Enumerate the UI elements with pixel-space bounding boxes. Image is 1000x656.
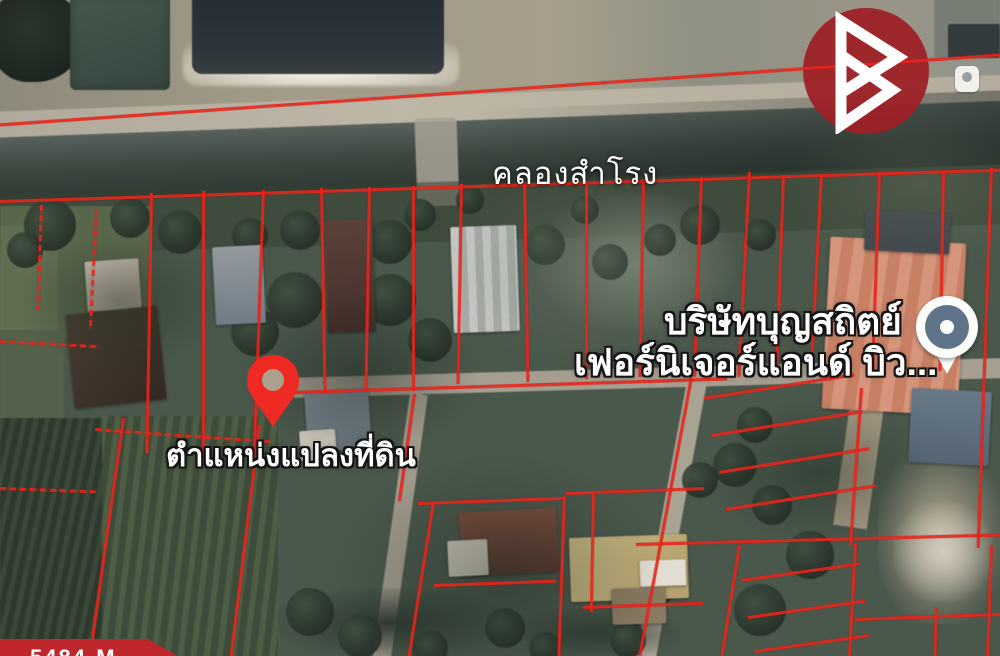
parcel-boundary-line [712, 410, 863, 437]
poi-center-dot [940, 320, 954, 334]
parcel-boundary-line [741, 562, 860, 582]
parcel-boundary-line [638, 377, 693, 656]
parcel-boundary-line [457, 184, 463, 384]
listing-id-text: 5484-M [30, 645, 178, 656]
parcel-boundary-line [89, 210, 98, 330]
parcel-boundary-line [88, 418, 125, 656]
parcel-boundary-line [719, 447, 870, 474]
parcel-boundary-line [590, 492, 595, 612]
parcel-boundary-line [407, 502, 435, 656]
location-pin-icon[interactable] [245, 354, 301, 428]
parcel-boundary-line [636, 533, 1000, 546]
parcel-boundary-line [202, 191, 205, 453]
triangle-b-logo-icon [803, 8, 929, 134]
parcel-boundary-line [0, 487, 96, 493]
parcel-boundary-line [36, 205, 43, 310]
parcel-boundary-line [412, 186, 415, 391]
business-name-label-line2: เฟอร์นิเจอร์แอนด์ บิว... [574, 333, 937, 392]
parcel-boundary-line [986, 545, 993, 656]
parcel-boundary-line [0, 340, 100, 348]
parcel-boundary-line [145, 193, 153, 453]
parcel-boundary-line [434, 580, 556, 587]
satellite-map[interactable]: คลองสำโรง บริษัทบุญสถิตย์ เฟอร์นิเจอร์แอ… [0, 0, 1000, 656]
business-poi-marker[interactable] [916, 296, 980, 378]
canal-name-label: คลองสำโรง [492, 148, 658, 198]
land-plot-caption: ตำแหน่งแปลงที่ดิน [166, 430, 416, 480]
parcel-boundary-line [748, 600, 865, 619]
parcel-boundary-line [557, 496, 566, 656]
pin-shape [245, 354, 301, 428]
listing-id-banner: 5484-M [0, 639, 178, 656]
parcel-boundary-line [583, 602, 703, 609]
parcel-boundary-line [418, 497, 566, 505]
parcel-boundary-line [720, 545, 741, 656]
parcel-boundary-line [320, 188, 327, 393]
parcel-boundary-line [523, 182, 529, 382]
parcel-boundary-line [566, 487, 704, 495]
parcel-boundary-line [933, 608, 938, 656]
parcel-boundary-line [855, 613, 1000, 621]
small-poi-icon [955, 66, 979, 92]
parcel-boundary-line [364, 187, 371, 392]
